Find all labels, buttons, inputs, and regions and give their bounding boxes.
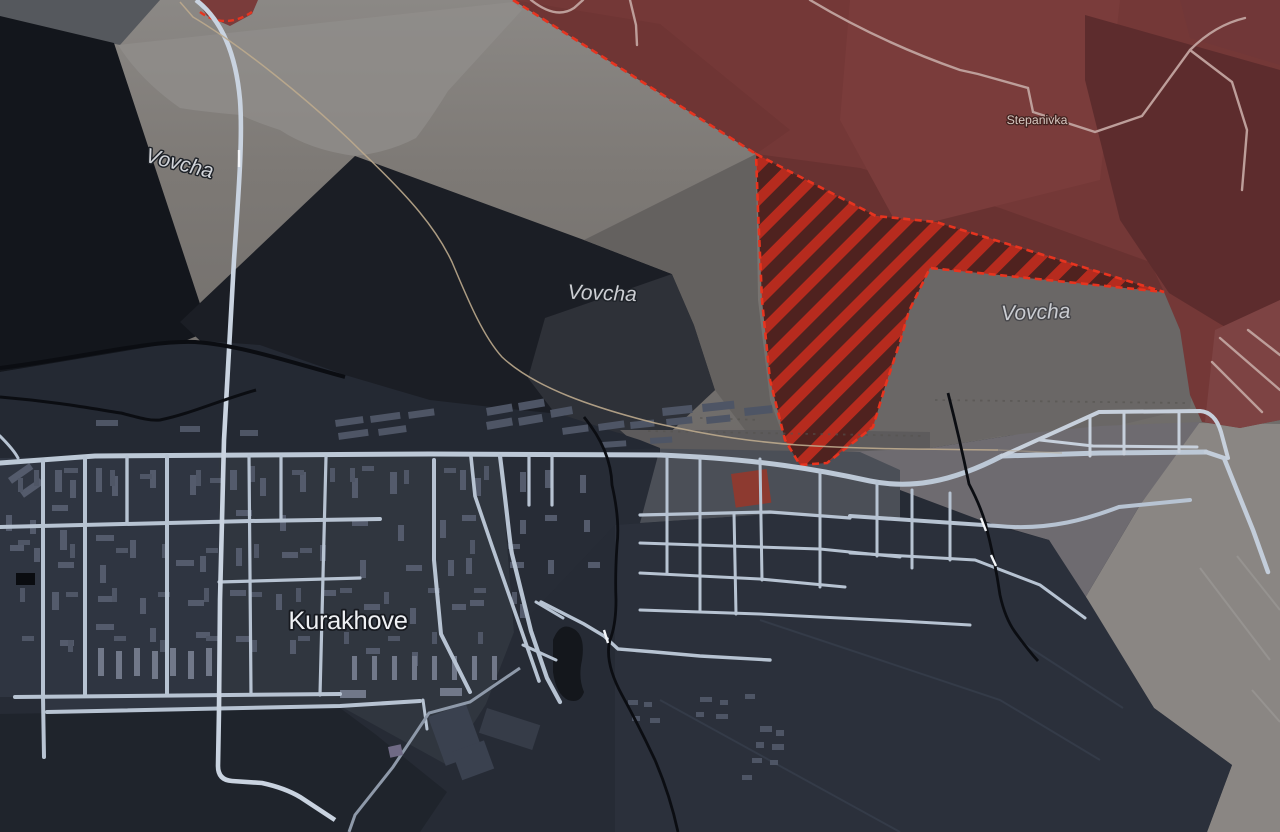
svg-text:Stepanivka: Stepanivka <box>1007 113 1068 127</box>
svg-text:Vovcha: Vovcha <box>1001 300 1071 325</box>
svg-text:Kurakhove: Kurakhove <box>288 607 407 635</box>
svg-text:Vovcha: Vovcha <box>567 281 637 306</box>
